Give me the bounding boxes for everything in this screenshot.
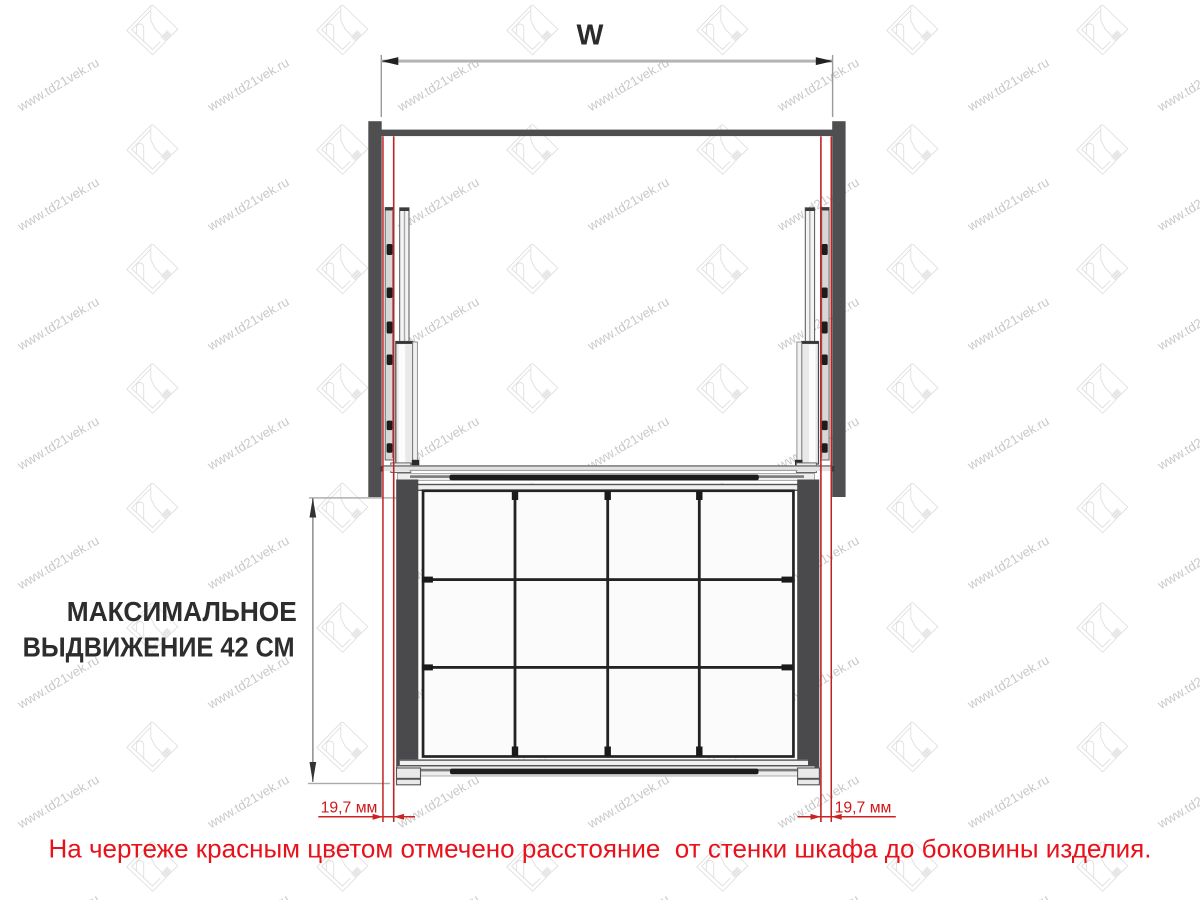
- svg-text:19,7 мм: 19,7 мм: [835, 799, 892, 816]
- svg-text:МАКСИМАЛЬНОЕ: МАКСИМАЛЬНОЕ: [67, 596, 297, 627]
- svg-text:ВЫДВИЖЕНИЕ 42 СМ: ВЫДВИЖЕНИЕ 42 СМ: [23, 631, 295, 662]
- svg-text:W: W: [577, 20, 604, 52]
- svg-text:На чертеже красным цветом отме: На чертеже красным цветом отмечено расст…: [49, 834, 1152, 864]
- svg-text:19,7 мм: 19,7 мм: [321, 799, 378, 816]
